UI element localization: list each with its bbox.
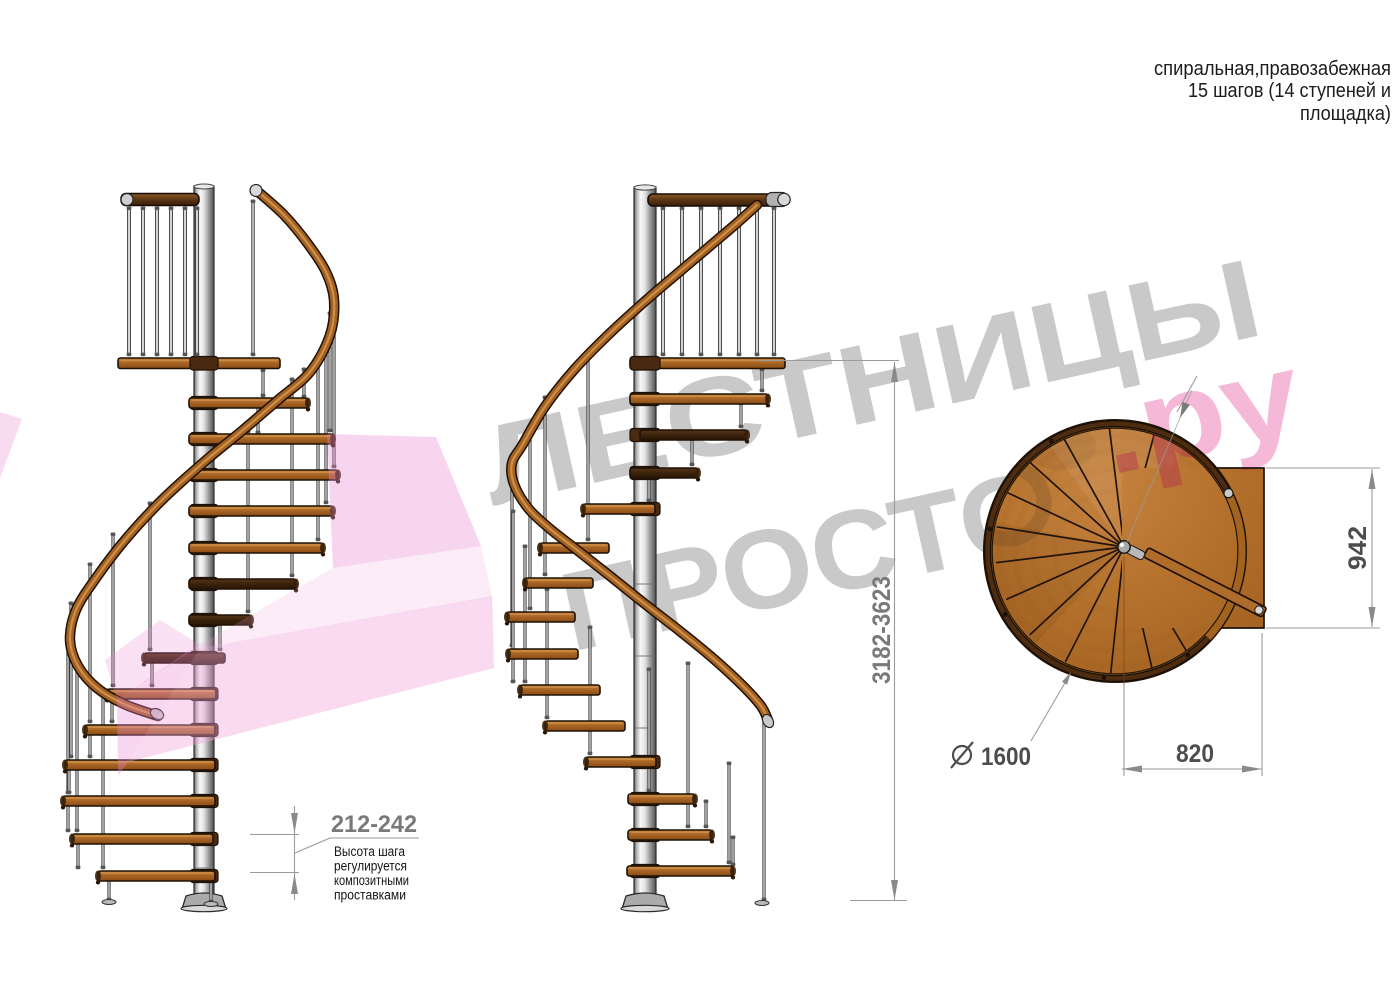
svg-text:15 шагов (14 ступеней и: 15 шагов (14 ступеней и	[1188, 79, 1391, 102]
svg-text:942: 942	[1344, 526, 1372, 570]
svg-text:композитными: композитными	[334, 873, 409, 888]
svg-text:регулируется: регулируется	[334, 859, 407, 874]
svg-text:212-242: 212-242	[331, 811, 417, 838]
svg-text:820: 820	[1176, 740, 1214, 768]
svg-text:спиральная,правозабежная: спиральная,правозабежная	[1154, 57, 1391, 80]
svg-text:Высота шага: Высота шага	[334, 844, 405, 859]
svg-text:площадка): площадка)	[1300, 102, 1391, 125]
svg-text:проставками: проставками	[334, 888, 406, 903]
svg-text:1600: 1600	[981, 743, 1031, 771]
svg-text:3182-3623: 3182-3623	[868, 576, 896, 684]
